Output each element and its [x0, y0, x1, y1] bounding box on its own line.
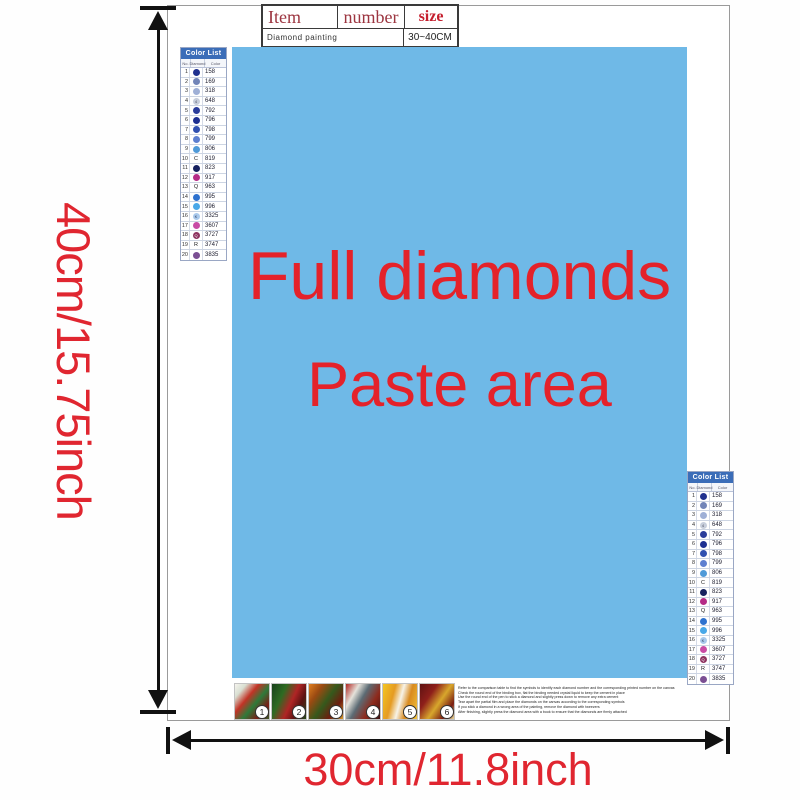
sample-thumbnail: 4 — [345, 683, 381, 720]
color-row-code: 792 — [710, 532, 733, 538]
diamond-symbol-cell — [697, 588, 710, 597]
color-row-code: 3325 — [203, 213, 226, 219]
color-list-row: 44648 — [688, 521, 733, 531]
thumbnail-number-badge: 6 — [440, 705, 454, 719]
diamond-symbol-cell — [697, 540, 710, 549]
diamond-symbol-cell — [190, 250, 203, 260]
spec-header-item: Item — [263, 6, 337, 28]
color-row-number: 13 — [688, 607, 697, 616]
color-list-row: 11823 — [181, 164, 226, 174]
color-list-row: 14995 — [688, 617, 733, 627]
color-list-body: 115821693318446485792679677988799980610C… — [181, 68, 226, 260]
color-row-number: 9 — [688, 569, 697, 578]
diamond-symbol-cell: R — [697, 665, 710, 674]
color-list-row: 1158 — [181, 68, 226, 78]
spec-size-value: 30~40CM — [403, 29, 456, 46]
color-list-row: 173607 — [181, 222, 226, 232]
color-list-row: 9806 — [688, 569, 733, 579]
color-list-row: 13Q963 — [688, 607, 733, 617]
diamond-symbol-cell — [190, 78, 203, 87]
color-list-row: 12917 — [181, 174, 226, 184]
diamond-symbol-cell — [697, 569, 710, 578]
color-row-number: 16 — [181, 212, 190, 221]
spec-table: Item number size Diamond painting 30~40C… — [261, 4, 459, 48]
color-list-row: 44648 — [181, 97, 226, 107]
color-row-code: 3325 — [710, 637, 733, 643]
diamond-symbol-cell — [697, 598, 710, 607]
color-row-code: 3727 — [710, 656, 733, 662]
diamond-symbol-cell — [190, 68, 203, 77]
diamond-symbol-cell: 4 — [190, 97, 203, 106]
instruction-line: After finishing, slightly press the diam… — [458, 710, 698, 715]
color-row-number: 3 — [688, 511, 697, 520]
diamond-symbol-cell — [190, 222, 203, 231]
diamond-color-dot-icon — [700, 493, 707, 500]
color-row-code: 823 — [710, 589, 733, 595]
color-row-code: 995 — [203, 194, 226, 200]
color-row-number: 1 — [181, 68, 190, 77]
diamond-color-dot-icon — [193, 88, 200, 95]
color-row-number: 8 — [688, 559, 697, 568]
color-row-number: 5 — [688, 530, 697, 539]
paste-area-title-line1: Full diamonds — [232, 237, 687, 315]
diamond-symbol-cell: Q — [190, 183, 203, 192]
spec-table-data-row: Diamond painting 30~40CM — [263, 29, 457, 46]
color-row-number: 7 — [688, 550, 697, 559]
color-row-code: 996 — [203, 204, 226, 210]
diamond-color-dot-icon — [193, 136, 200, 143]
sample-thumbnail: 6 — [419, 683, 455, 720]
diamond-color-dot-icon — [193, 146, 200, 153]
color-row-number: 4 — [688, 521, 697, 530]
thumbnail-strip: 123456 — [234, 683, 455, 720]
spec-table-header-row: Item number size — [263, 6, 457, 29]
color-row-number: 11 — [688, 588, 697, 597]
color-row-number: 3 — [181, 87, 190, 96]
arrow-down-icon — [148, 690, 168, 709]
diamond-symbol-cell — [190, 164, 203, 173]
thumbnail-number-badge: 5 — [403, 705, 417, 719]
width-dimension-label: 30cm/11.8inch — [168, 744, 728, 796]
diamond-symbol-cell: C — [190, 154, 203, 163]
sample-thumbnail: 1 — [234, 683, 270, 720]
color-list-row: 5792 — [181, 106, 226, 116]
sample-thumbnail: 2 — [271, 683, 307, 720]
diamond-symbol-cell — [697, 617, 710, 626]
color-row-code: 318 — [203, 88, 226, 94]
diamond-color-dot-icon — [193, 117, 200, 124]
diamond-symbol-cell: Q — [697, 607, 710, 616]
color-row-number: 11 — [181, 164, 190, 173]
height-arrow-top-cap — [140, 6, 176, 10]
color-row-number: 20 — [181, 250, 190, 260]
color-list-body: 115821693318446485792679677988799980610C… — [688, 492, 733, 684]
diamond-symbol-cell — [697, 492, 710, 501]
spec-header-size: size — [404, 6, 457, 28]
diamond-color-dot-icon — [700, 618, 707, 625]
diamond-symbol-cell — [190, 106, 203, 115]
sample-thumbnail: 3 — [308, 683, 344, 720]
diamond-color-dot-icon — [193, 194, 200, 201]
color-list-row: 3318 — [688, 511, 733, 521]
color-row-number: 18 — [688, 655, 697, 664]
color-list-row: 7798 — [688, 550, 733, 560]
color-list-col-color: Color — [205, 59, 226, 67]
diamond-color-dot-icon — [700, 598, 707, 605]
product-diagram-page: Item number size Diamond painting 30~40C… — [0, 0, 800, 800]
diamond-color-dot-icon: 4 — [193, 98, 200, 105]
diamond-color-dot-icon — [700, 502, 707, 509]
thumbnail-number-badge: 3 — [329, 705, 343, 719]
color-row-number: 20 — [688, 674, 697, 684]
color-list-left: Color List No. Diamond Color 11582169331… — [180, 47, 227, 261]
color-list-column-headers: No. Diamond Color — [181, 59, 226, 68]
diamond-symbol-cell — [190, 126, 203, 135]
diamond-symbol-cell — [190, 135, 203, 144]
diamond-color-dot-icon — [700, 560, 707, 567]
color-list-row: 15996 — [688, 626, 733, 636]
color-list-title: Color List — [181, 48, 226, 59]
color-row-number: 7 — [181, 126, 190, 135]
diamond-color-dot-icon — [700, 589, 707, 596]
diamond-color-dot-icon — [193, 174, 200, 181]
color-list-row: 203835 — [181, 250, 226, 260]
color-row-code: 3607 — [203, 223, 226, 229]
color-row-code: 798 — [203, 127, 226, 133]
color-row-number: 2 — [181, 78, 190, 87]
width-arrow-line — [176, 739, 720, 742]
color-list-title: Color List — [688, 472, 733, 483]
diamond-symbol-cell — [190, 116, 203, 125]
diamond-symbol-cell: R — [190, 241, 203, 250]
spec-header-number: number — [337, 6, 404, 28]
color-list-row: 173607 — [688, 646, 733, 656]
color-row-number: 14 — [688, 617, 697, 626]
diamond-color-dot-icon — [193, 126, 200, 133]
color-list-row: 19R3747 — [688, 665, 733, 675]
color-row-code: 823 — [203, 165, 226, 171]
color-list-col-diamond: Diamond — [698, 483, 712, 491]
arrow-up-icon — [148, 11, 168, 30]
color-row-code: 799 — [203, 136, 226, 142]
color-list-column-headers: No. Diamond Color — [688, 483, 733, 492]
color-row-code: 995 — [710, 618, 733, 624]
sample-thumbnail: 5 — [382, 683, 418, 720]
color-row-number: 10 — [181, 154, 190, 163]
color-row-code: 3727 — [203, 232, 226, 238]
color-row-code: 3747 — [710, 666, 733, 672]
color-row-number: 12 — [181, 174, 190, 183]
paste-area: Full diamonds Paste area — [232, 47, 687, 678]
diamond-color-dot-icon — [700, 531, 707, 538]
color-list-row: 9806 — [181, 145, 226, 155]
diamond-color-dot-icon: K — [700, 637, 707, 644]
color-list-col-diamond: Diamond — [191, 59, 205, 67]
diamond-symbol-cell — [697, 511, 710, 520]
diamond-symbol-cell — [190, 145, 203, 154]
color-list-row: 6796 — [181, 116, 226, 126]
color-list-row: 10C819 — [688, 578, 733, 588]
color-row-code: 169 — [203, 79, 226, 85]
color-row-number: 6 — [181, 116, 190, 125]
color-row-number: 13 — [181, 183, 190, 192]
color-list-row: 2169 — [688, 502, 733, 512]
color-row-code: 158 — [203, 69, 226, 75]
color-row-number: 8 — [181, 135, 190, 144]
color-list-row: 12917 — [688, 598, 733, 608]
color-row-code: 3835 — [203, 252, 226, 258]
color-list-row: 19R3747 — [181, 241, 226, 251]
diamond-color-dot-icon — [700, 646, 707, 653]
color-list-row: 11823 — [688, 588, 733, 598]
color-row-code: 3747 — [203, 242, 226, 248]
diamond-color-dot-icon — [193, 252, 200, 259]
color-list-row: 10C819 — [181, 154, 226, 164]
color-row-code: 3835 — [710, 676, 733, 682]
diamond-symbol-cell: C — [697, 578, 710, 587]
color-row-number: 1 — [688, 492, 697, 501]
color-row-code: 3607 — [710, 647, 733, 653]
thumbnail-number-badge: 2 — [292, 705, 306, 719]
diamond-color-dot-icon: Q — [700, 656, 707, 663]
diamond-color-dot-icon — [700, 676, 707, 683]
diamond-symbol-cell — [697, 530, 710, 539]
color-row-code: 996 — [710, 628, 733, 634]
diamond-symbol-cell: K — [697, 636, 710, 645]
diamond-color-dot-icon: Q — [193, 232, 200, 239]
diamond-symbol-cell — [190, 202, 203, 211]
color-row-code: 796 — [710, 541, 733, 547]
color-row-code: 963 — [710, 608, 733, 614]
height-dimension-label: 40cm/15.75inch — [46, 202, 101, 520]
color-row-number: 17 — [688, 646, 697, 655]
diamond-symbol-cell — [697, 646, 710, 655]
color-row-number: 14 — [181, 193, 190, 202]
diamond-color-dot-icon — [193, 165, 200, 172]
instructions-block: Refer to the comparison table to find th… — [458, 686, 698, 714]
diamond-color-dot-icon: 4 — [700, 522, 707, 529]
color-row-number: 6 — [688, 540, 697, 549]
color-list-row: 8799 — [688, 559, 733, 569]
color-row-number: 12 — [688, 598, 697, 607]
diamond-symbol-cell — [697, 674, 710, 684]
color-row-number: 5 — [181, 106, 190, 115]
diamond-color-dot-icon — [700, 570, 707, 577]
color-row-code: 917 — [203, 175, 226, 181]
color-row-code: 648 — [710, 522, 733, 528]
diamond-symbol-cell — [697, 550, 710, 559]
color-list-row: 3318 — [181, 87, 226, 97]
color-list-row: 18Q3727 — [688, 655, 733, 665]
diamond-color-dot-icon: K — [193, 213, 200, 220]
diamond-color-dot-icon — [193, 107, 200, 114]
diamond-symbol-cell — [190, 174, 203, 183]
color-row-code: 819 — [710, 580, 733, 586]
color-list-row: 15996 — [181, 202, 226, 212]
color-row-code: 798 — [710, 551, 733, 557]
color-row-code: 963 — [203, 184, 226, 190]
diamond-color-dot-icon — [700, 541, 707, 548]
height-arrow-bottom-cap — [140, 710, 176, 714]
color-list-row: 1158 — [688, 492, 733, 502]
color-row-number: 19 — [181, 241, 190, 250]
color-row-code: 792 — [203, 108, 226, 114]
color-list-row: 14995 — [181, 193, 226, 203]
color-row-code: 648 — [203, 98, 226, 104]
color-row-code: 806 — [710, 570, 733, 576]
paste-area-title-line2: Paste area — [232, 349, 687, 421]
diamond-symbol-cell: Q — [697, 655, 710, 664]
color-list-row: 5792 — [688, 530, 733, 540]
color-row-number: 10 — [688, 578, 697, 587]
color-row-number: 18 — [181, 231, 190, 240]
diamond-symbol-cell — [190, 193, 203, 202]
color-list-row: 16K3325 — [688, 636, 733, 646]
diamond-color-dot-icon — [700, 627, 707, 634]
diamond-symbol-cell — [190, 87, 203, 96]
spec-item-value: Diamond painting — [263, 29, 403, 46]
diamond-color-dot-icon — [193, 203, 200, 210]
diamond-symbol-cell — [697, 502, 710, 511]
diamond-color-dot-icon — [193, 222, 200, 229]
color-row-code: 806 — [203, 146, 226, 152]
color-row-number: 15 — [181, 202, 190, 211]
color-list-row: 203835 — [688, 674, 733, 684]
diamond-color-dot-icon — [193, 69, 200, 76]
color-list-right: Color List No. Diamond Color 11582169331… — [687, 471, 734, 685]
color-row-number: 17 — [181, 222, 190, 231]
color-row-code: 819 — [203, 156, 226, 162]
color-row-number: 15 — [688, 626, 697, 635]
diamond-symbol-cell — [697, 559, 710, 568]
diamond-symbol-cell: Q — [190, 231, 203, 240]
color-row-number: 9 — [181, 145, 190, 154]
color-row-code: 917 — [710, 599, 733, 605]
color-row-number: 19 — [688, 665, 697, 674]
color-row-number: 16 — [688, 636, 697, 645]
color-row-code: 796 — [203, 117, 226, 123]
thumbnail-number-badge: 4 — [366, 705, 380, 719]
color-list-row: 8799 — [181, 135, 226, 145]
diamond-color-dot-icon — [193, 78, 200, 85]
color-row-code: 799 — [710, 560, 733, 566]
color-row-code: 169 — [710, 503, 733, 509]
color-list-row: 2169 — [181, 78, 226, 88]
color-row-code: 318 — [710, 512, 733, 518]
color-row-number: 4 — [181, 97, 190, 106]
color-list-row: 18Q3727 — [181, 231, 226, 241]
instruction-line: Refer to the comparison table to find th… — [458, 686, 698, 691]
height-arrow-line — [157, 24, 160, 696]
color-row-code: 158 — [710, 493, 733, 499]
color-row-number: 2 — [688, 502, 697, 511]
diamond-color-dot-icon — [700, 550, 707, 557]
color-list-row: 6796 — [688, 540, 733, 550]
diamond-color-dot-icon — [700, 512, 707, 519]
color-list-row: 16K3325 — [181, 212, 226, 222]
color-list-row: 7798 — [181, 126, 226, 136]
diamond-symbol-cell: 4 — [697, 521, 710, 530]
color-list-row: 13Q963 — [181, 183, 226, 193]
color-list-col-color: Color — [712, 483, 733, 491]
thumbnail-number-badge: 1 — [255, 705, 269, 719]
diamond-symbol-cell — [697, 626, 710, 635]
diamond-symbol-cell: K — [190, 212, 203, 221]
